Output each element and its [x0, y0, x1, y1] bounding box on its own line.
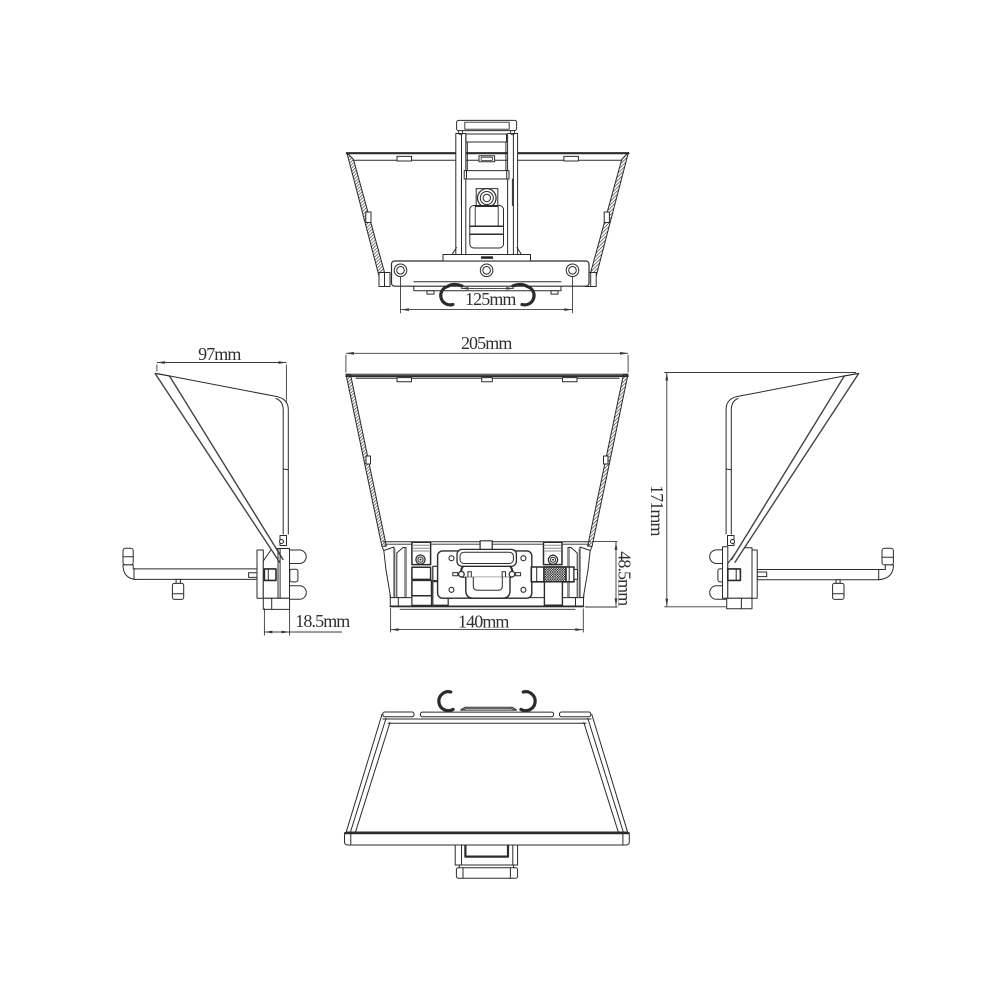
- svg-text:97mm: 97mm: [198, 344, 241, 364]
- svg-text:140mm: 140mm: [458, 612, 509, 632]
- svg-text:48.5mm: 48.5mm: [615, 551, 635, 606]
- svg-text:171mm: 171mm: [647, 485, 667, 536]
- svg-text:125mm: 125mm: [465, 289, 516, 309]
- svg-text:18.5mm: 18.5mm: [295, 611, 350, 631]
- svg-text:205mm: 205mm: [461, 333, 512, 353]
